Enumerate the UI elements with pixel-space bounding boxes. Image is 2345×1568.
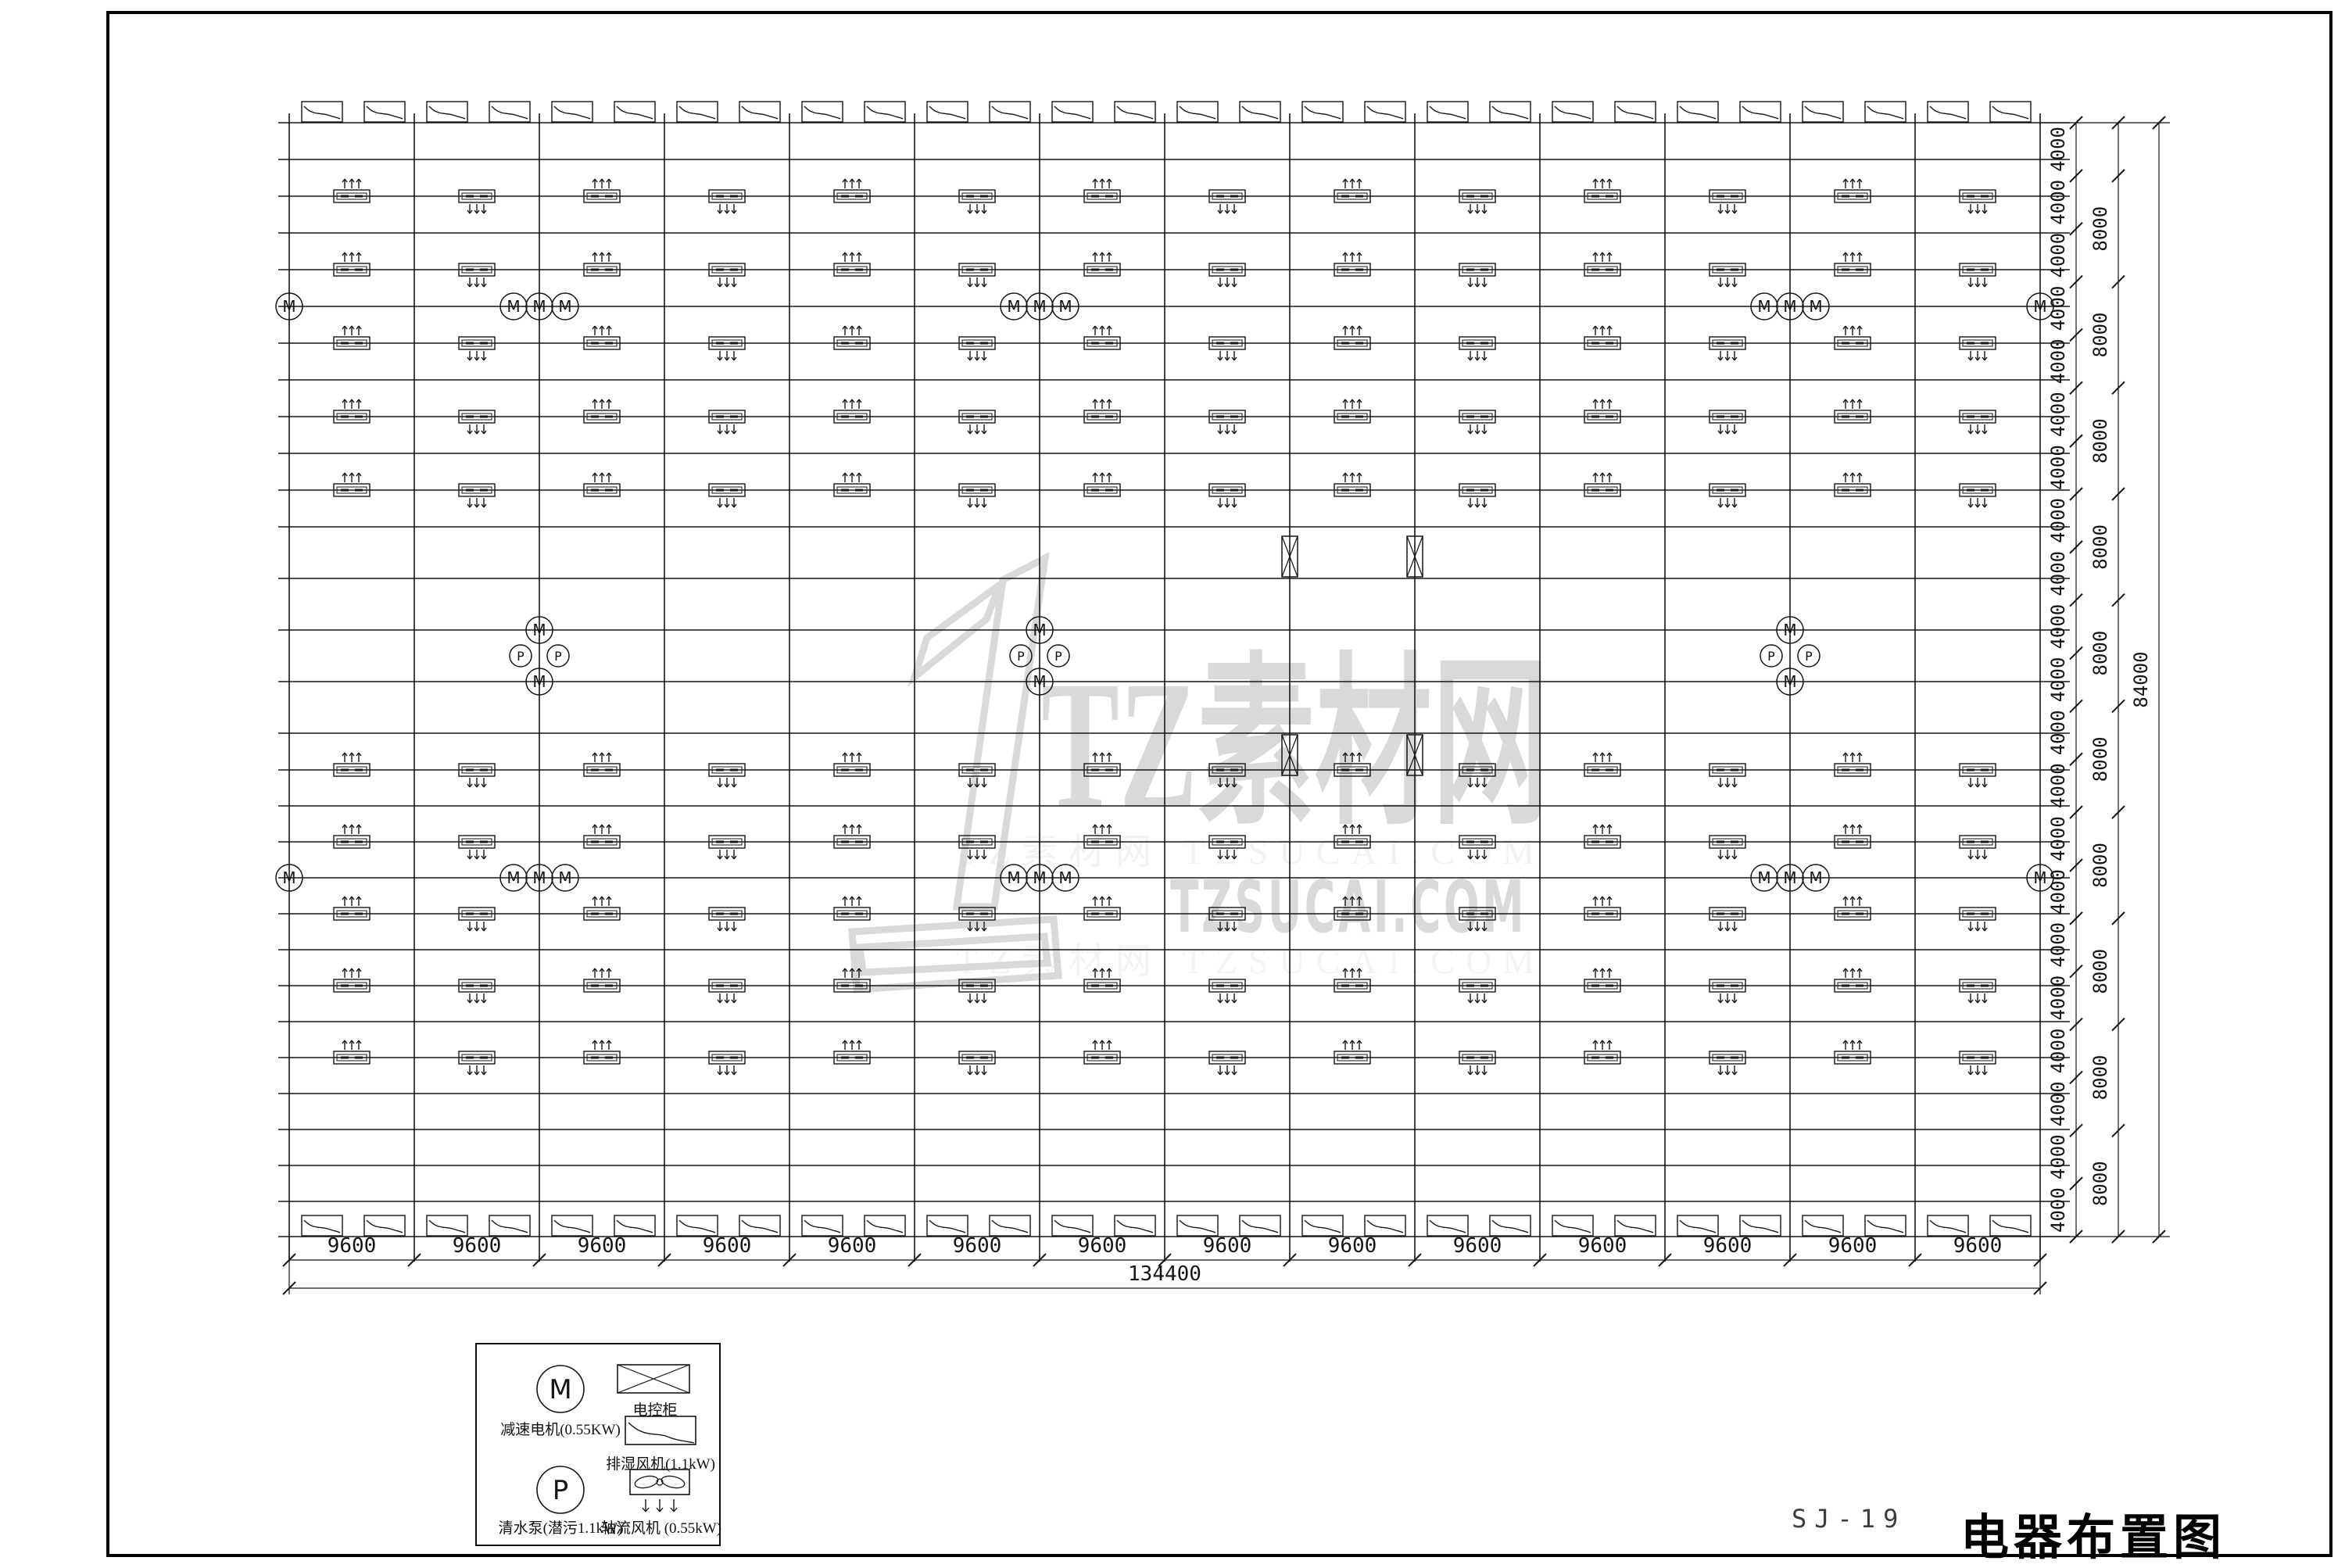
exhaust-fan-symbol — [1928, 1215, 1968, 1236]
exhaust-fan-symbol — [990, 1215, 1030, 1236]
svg-text:M: M — [507, 297, 520, 316]
axial-fan-symbol — [1960, 190, 1996, 213]
motor-symbol: M — [1026, 865, 1053, 891]
exhaust-fan-symbol — [1552, 102, 1593, 122]
axial-fan-symbol — [1710, 410, 1745, 434]
exhaust-fan-symbol — [1740, 1215, 1781, 1236]
axial-fan-symbol — [1209, 484, 1245, 507]
exhaust-fan-symbol — [614, 102, 655, 122]
svg-text:4000: 4000 — [2047, 1029, 2069, 1074]
exhaust-fan-symbol — [489, 102, 530, 122]
watermark-brand: TZ素材网 — [1041, 643, 1549, 847]
exhaust-fan-symbol — [739, 102, 780, 122]
axial-fan-symbol — [334, 897, 370, 920]
svg-text:4000: 4000 — [2047, 1134, 2069, 1180]
exhaust-fan-symbol — [1177, 102, 1218, 122]
axial-fan-symbol — [584, 473, 620, 496]
exhaust-fan-symbol — [1615, 1215, 1656, 1236]
motor-symbol: M — [500, 865, 527, 891]
exhaust-fan-symbol — [1177, 1215, 1218, 1236]
svg-text:4000: 4000 — [2047, 604, 2069, 650]
exhaust-fan-symbol — [1240, 102, 1280, 122]
motor-symbol: M — [526, 865, 553, 891]
axial-fan-symbol — [334, 252, 370, 276]
exhaust-fan-symbol — [1552, 1215, 1593, 1236]
axial-fan-symbol — [1710, 484, 1745, 507]
exhaust-fan-symbol — [802, 102, 843, 122]
motor-symbol: M — [1803, 293, 1829, 320]
legend-axial-fan-label: 轴流风机 (0.55kW) — [601, 1516, 721, 1538]
legend-motor-label: 减速电机(0.55KW) — [500, 1418, 621, 1439]
exhaust-fan-symbol — [1740, 102, 1781, 122]
svg-text:M: M — [282, 868, 295, 887]
motor-symbol: M — [1026, 617, 1053, 643]
axial-fan-symbol — [1710, 908, 1745, 931]
svg-text:M: M — [2033, 297, 2046, 316]
svg-text:4000: 4000 — [2047, 1187, 2069, 1233]
axial-fan-symbol — [1835, 968, 1871, 992]
axial-fan-symbol — [1584, 825, 1620, 848]
motor-symbol: M — [526, 668, 553, 695]
exhaust-fan-symbol — [802, 1215, 843, 1236]
axial-fan-symbol — [1209, 410, 1245, 434]
pump-symbol: P — [1047, 645, 1069, 667]
exhaust-fan-symbol — [677, 1215, 718, 1236]
axial-fan-symbol — [1960, 484, 1996, 507]
axial-fan-symbol — [1710, 337, 1745, 360]
axial-fan-symbol — [584, 399, 620, 423]
drawing-sheet: TZ素材网TZSUCAI.COMTZ素材网 TZSUCAI.COMTZ素材网 T… — [0, 0, 2345, 1563]
svg-text:9600: 9600 — [1453, 1234, 1502, 1258]
svg-text:M: M — [1783, 621, 1796, 639]
svg-text:M: M — [1033, 621, 1046, 639]
motor-symbol: M — [276, 293, 303, 320]
exhaust-fan-symbol — [1990, 1215, 2031, 1236]
svg-text:4000: 4000 — [2047, 338, 2069, 384]
svg-text:M: M — [1809, 868, 1822, 887]
svg-text:8000: 8000 — [2089, 313, 2111, 358]
exhaust-fan-symbol — [1052, 102, 1093, 122]
svg-text:8000: 8000 — [2089, 206, 2111, 252]
svg-text:9600: 9600 — [1578, 1234, 1627, 1258]
exhaust-fan-symbol — [1365, 102, 1405, 122]
watermark-faint-row: TZ素材网 TZSUCAI.COM — [956, 941, 1545, 981]
svg-text:8000: 8000 — [2089, 1055, 2111, 1101]
exhaust-fan-symbol — [927, 102, 968, 122]
axial-fan-symbol — [1960, 979, 1996, 1003]
axial-fan-symbol — [584, 326, 620, 349]
svg-text:8000: 8000 — [2089, 736, 2111, 782]
exhaust-fan-symbol — [865, 1215, 905, 1236]
svg-text:M: M — [532, 868, 546, 887]
svg-text:134400: 134400 — [1128, 1262, 1201, 1286]
axial-fan-symbol — [1584, 179, 1620, 202]
axial-fan-symbol — [709, 836, 745, 859]
axial-fan-symbol — [1334, 179, 1370, 202]
exhaust-fan-symbol — [1115, 102, 1155, 122]
axial-fan-symbol — [834, 179, 870, 202]
axial-fan-symbol — [334, 326, 370, 349]
svg-text:9600: 9600 — [1828, 1234, 1878, 1258]
axial-fan-symbol — [459, 908, 495, 931]
svg-text:4000: 4000 — [2047, 816, 2069, 861]
svg-text:9600: 9600 — [703, 1234, 752, 1258]
axial-fan-symbol — [1835, 326, 1871, 349]
axial-fan-symbol — [834, 399, 870, 423]
motor-symbol: M — [1777, 617, 1803, 643]
axial-fan-symbol — [459, 263, 495, 287]
axial-fan-symbol — [959, 263, 995, 287]
exhaust-fan-symbol — [427, 102, 467, 122]
axial-fan-symbol — [334, 968, 370, 992]
axial-fan-symbol — [834, 473, 870, 496]
svg-text:4000: 4000 — [2047, 869, 2069, 915]
axial-fan-symbol — [459, 764, 495, 787]
svg-text:84000: 84000 — [2130, 651, 2152, 707]
axial-fan-symbol — [584, 825, 620, 848]
pump-symbol: P — [510, 645, 532, 667]
exhaust-fan-symbol — [1427, 102, 1468, 122]
pump-symbol: P — [1760, 645, 1782, 667]
motor-symbol: M — [1001, 293, 1027, 320]
svg-text:9600: 9600 — [1078, 1234, 1127, 1258]
exhaust-fan-symbol — [1865, 102, 1906, 122]
svg-text:4000: 4000 — [2047, 710, 2069, 755]
axial-fan-symbol — [1584, 252, 1620, 276]
axial-fan-symbol — [1459, 263, 1495, 287]
axial-fan-symbol — [1584, 473, 1620, 496]
axial-fan-symbol — [1710, 190, 1745, 213]
exhaust-fan-symbol — [677, 102, 718, 122]
axial-fan-symbol — [459, 190, 495, 213]
axial-fan-symbol — [1710, 979, 1745, 1003]
axial-fan-symbol — [1084, 1040, 1120, 1064]
axial-fan-symbol — [1710, 836, 1745, 859]
svg-text:M: M — [2033, 868, 2046, 887]
axial-fan-symbol — [709, 979, 745, 1003]
svg-text:4000: 4000 — [2047, 657, 2069, 703]
axial-fan-symbol — [1960, 1051, 1996, 1075]
motor-symbol: M — [552, 293, 578, 320]
axial-fan-symbol — [1084, 252, 1120, 276]
axial-fan-symbol — [459, 836, 495, 859]
axial-fan-symbol — [959, 979, 995, 1003]
page-title: 电器布置图 — [1960, 1498, 2226, 1568]
axial-fan-symbol — [1084, 897, 1120, 920]
axial-fan-symbol — [334, 1040, 370, 1064]
exhaust-fan-symbol — [739, 1215, 780, 1236]
axial-fan-symbol — [584, 753, 620, 776]
axial-fan-symbol — [1584, 897, 1620, 920]
svg-text:4000: 4000 — [2047, 233, 2069, 278]
motor-symbol: M — [1803, 865, 1829, 891]
svg-text:4000: 4000 — [2047, 180, 2069, 225]
axial-fan-symbol — [584, 252, 620, 276]
axial-fan-symbol — [1459, 979, 1495, 1003]
exhaust-fan-symbol — [1427, 1215, 1468, 1236]
svg-text:4000: 4000 — [2047, 127, 2069, 172]
axial-fan-symbol — [1084, 399, 1120, 423]
axial-fan-symbol — [1960, 764, 1996, 787]
svg-text:4000: 4000 — [2047, 551, 2069, 596]
axial-fan-symbol — [834, 252, 870, 276]
axial-fan-symbol — [1835, 1040, 1871, 1064]
axial-fan-symbol — [709, 263, 745, 287]
exhaust-fan-symbol — [1865, 1215, 1906, 1236]
axial-fan-symbol — [459, 484, 495, 507]
svg-text:M: M — [282, 297, 295, 316]
svg-text:M: M — [507, 868, 520, 887]
svg-text:P: P — [1017, 649, 1025, 664]
svg-text:9600: 9600 — [828, 1234, 877, 1258]
axial-fan-symbol — [1334, 1040, 1370, 1064]
pump-symbol: P — [1798, 645, 1820, 667]
axial-fan-symbol — [709, 337, 745, 360]
axial-fan-symbol — [709, 1051, 745, 1075]
svg-text:4000: 4000 — [2047, 976, 2069, 1021]
axial-fan-symbol — [334, 399, 370, 423]
axial-fan-symbol — [1459, 337, 1495, 360]
exhaust-fan-symbol — [1677, 1215, 1718, 1236]
axial-fan-symbol — [1835, 179, 1871, 202]
exhaust-fan-symbol — [1052, 1215, 1093, 1236]
svg-text:4000: 4000 — [2047, 922, 2069, 968]
watermark-logo — [915, 585, 1000, 677]
axial-fan-symbol — [1835, 753, 1871, 776]
exhaust-fan-symbol — [364, 1215, 405, 1236]
axial-fan-symbol — [1835, 897, 1871, 920]
axial-fan-symbol — [1584, 753, 1620, 776]
axial-fan-symbol — [959, 410, 995, 434]
axial-fan-symbol — [1334, 252, 1370, 276]
motor-symbol: M — [526, 293, 553, 320]
svg-text:4000: 4000 — [2047, 763, 2069, 808]
svg-text:M: M — [1757, 868, 1770, 887]
svg-text:4000: 4000 — [2047, 1081, 2069, 1126]
sheet-code: SJ-19 — [1792, 1504, 1906, 1534]
svg-text:M: M — [1033, 672, 1046, 691]
axial-fan-symbol — [834, 897, 870, 920]
exhaust-fan-symbol — [489, 1215, 530, 1236]
svg-text:M: M — [558, 868, 571, 887]
axial-fan-symbol — [1584, 399, 1620, 423]
axial-fan-symbol — [1584, 1040, 1620, 1064]
axial-fan-symbol — [834, 753, 870, 776]
motor-symbol: M — [1751, 293, 1778, 320]
svg-text:9600: 9600 — [1703, 1234, 1752, 1258]
svg-text:9600: 9600 — [953, 1234, 1002, 1258]
exhaust-fan-symbol — [364, 102, 405, 122]
axial-fan-symbol — [709, 908, 745, 931]
axial-fan-symbol — [709, 190, 745, 213]
axial-fan-symbol — [1209, 1051, 1245, 1075]
axial-fan-symbol — [459, 410, 495, 434]
axial-fan-symbol — [709, 410, 745, 434]
exhaust-fan-symbol — [302, 1215, 342, 1236]
svg-text:9600: 9600 — [1953, 1234, 2003, 1258]
axial-fan-symbol — [334, 825, 370, 848]
svg-text:M: M — [1783, 297, 1796, 316]
axial-fan-symbol — [459, 979, 495, 1003]
axial-fan-symbol — [834, 326, 870, 349]
svg-text:M: M — [1058, 297, 1072, 316]
exhaust-fan-symbol — [865, 102, 905, 122]
exhaust-fan-symbol — [1115, 1215, 1155, 1236]
motor-symbol: M — [1777, 293, 1803, 320]
motor-symbol: M — [1052, 865, 1079, 891]
axial-fan-symbol — [1459, 1051, 1495, 1075]
svg-text:9600: 9600 — [453, 1234, 502, 1258]
axial-fan-symbol — [959, 190, 995, 213]
axial-fan-symbol — [1835, 473, 1871, 496]
motor-symbol: M — [500, 293, 527, 320]
axial-fan-symbol — [1710, 1051, 1745, 1075]
exhaust-fan-symbol — [1302, 102, 1343, 122]
motor-symbol: M — [552, 865, 578, 891]
floor-plan-canvas: TZ素材网TZSUCAI.COMTZ素材网 TZSUCAI.COMTZ素材网 T… — [0, 0, 2345, 1563]
svg-text:4000: 4000 — [2047, 498, 2069, 543]
axial-fan-symbol — [1960, 908, 1996, 931]
svg-text:8000: 8000 — [2089, 524, 2111, 570]
legend-box — [475, 1343, 721, 1546]
axial-fan-symbol — [1084, 179, 1120, 202]
exhaust-fan-symbol — [552, 102, 593, 122]
svg-text:8000: 8000 — [2089, 418, 2111, 464]
svg-text:P: P — [1767, 649, 1775, 664]
motor-symbol: M — [1777, 865, 1803, 891]
axial-fan-symbol — [459, 337, 495, 360]
exhaust-fan-symbol — [1490, 1215, 1531, 1236]
svg-text:9600: 9600 — [1203, 1234, 1252, 1258]
motor-symbol: M — [1026, 668, 1053, 695]
axial-fan-symbol — [834, 1040, 870, 1064]
motor-symbol: M — [1751, 865, 1778, 891]
svg-text:8000: 8000 — [2089, 631, 2111, 676]
svg-text:M: M — [532, 672, 546, 691]
axial-fan-symbol — [1209, 190, 1245, 213]
svg-text:4000: 4000 — [2047, 445, 2069, 490]
axial-fan-symbol — [1209, 263, 1245, 287]
axial-fan-symbol — [1334, 473, 1370, 496]
svg-text:M: M — [1783, 672, 1796, 691]
motor-symbol: M — [1777, 668, 1803, 695]
motor-symbol: M — [1001, 865, 1027, 891]
axial-fan-symbol — [584, 179, 620, 202]
axial-fan-symbol — [959, 337, 995, 360]
axial-fan-symbol — [1209, 337, 1245, 360]
svg-text:M: M — [1058, 868, 1072, 887]
axial-fan-symbol — [834, 825, 870, 848]
exhaust-fan-symbol — [302, 102, 342, 122]
axial-fan-symbol — [334, 473, 370, 496]
exhaust-fan-symbol — [1928, 102, 1968, 122]
exhaust-fan-symbol — [614, 1215, 655, 1236]
axial-fan-symbol — [334, 753, 370, 776]
axial-fan-symbol — [1960, 410, 1996, 434]
exhaust-fan-symbol — [552, 1215, 593, 1236]
axial-fan-symbol — [1710, 263, 1745, 287]
svg-text:M: M — [1809, 297, 1822, 316]
axial-fan-symbol — [459, 1051, 495, 1075]
pump-symbol: P — [1010, 645, 1032, 667]
svg-text:9600: 9600 — [578, 1234, 627, 1258]
svg-text:M: M — [1007, 297, 1020, 316]
legend-cabinet-label: 电控柜 — [632, 1398, 677, 1419]
axial-fan-symbol — [1584, 326, 1620, 349]
motor-symbol: M — [1026, 293, 1053, 320]
exhaust-fan-symbol — [1240, 1215, 1280, 1236]
exhaust-fan-symbol — [1803, 1215, 1843, 1236]
exhaust-fan-symbol — [927, 1215, 968, 1236]
exhaust-fan-symbol — [1803, 102, 1843, 122]
svg-text:M: M — [558, 297, 571, 316]
svg-text:8000: 8000 — [2089, 1161, 2111, 1206]
axial-fan-symbol — [1459, 410, 1495, 434]
axial-fan-symbol — [1835, 399, 1871, 423]
axial-fan-symbol — [584, 968, 620, 992]
exhaust-fan-symbol — [1615, 102, 1656, 122]
motor-symbol: M — [526, 617, 553, 643]
svg-text:8000: 8000 — [2089, 949, 2111, 994]
exhaust-fan-symbol — [1677, 102, 1718, 122]
svg-text:M: M — [1033, 868, 1046, 887]
svg-text:4000: 4000 — [2047, 286, 2069, 331]
exhaust-fan-symbol — [1365, 1215, 1405, 1236]
axial-fan-symbol — [1459, 190, 1495, 213]
svg-text:P: P — [517, 649, 524, 664]
axial-fan-symbol — [1334, 326, 1370, 349]
axial-fan-symbol — [334, 179, 370, 202]
svg-text:4000: 4000 — [2047, 392, 2069, 437]
svg-text:8000: 8000 — [2089, 843, 2111, 888]
legend-exhaust-fan-label: 排湿风机(1.1kW) — [606, 1452, 715, 1473]
axial-fan-symbol — [1835, 825, 1871, 848]
svg-text:M: M — [1033, 297, 1046, 316]
svg-text:P: P — [554, 649, 562, 664]
svg-text:P: P — [1805, 649, 1813, 664]
axial-fan-symbol — [584, 897, 620, 920]
exhaust-fan-symbol — [990, 102, 1030, 122]
axial-fan-symbol — [1084, 326, 1120, 349]
axial-fan-symbol — [1459, 484, 1495, 507]
axial-fan-symbol — [959, 484, 995, 507]
motor-symbol: M — [276, 865, 303, 891]
svg-text:M: M — [532, 297, 546, 316]
axial-fan-symbol — [1835, 252, 1871, 276]
axial-fan-symbol — [709, 484, 745, 507]
svg-text:M: M — [1757, 297, 1770, 316]
svg-text:9600: 9600 — [1328, 1234, 1377, 1258]
axial-fan-symbol — [1084, 473, 1120, 496]
svg-text:M: M — [532, 621, 546, 639]
pump-symbol: P — [547, 645, 569, 667]
exhaust-fan-symbol — [1990, 102, 2031, 122]
axial-fan-symbol — [1209, 979, 1245, 1003]
motor-symbol: M — [1052, 293, 1079, 320]
axial-fan-symbol — [1960, 263, 1996, 287]
axial-fan-symbol — [959, 1051, 995, 1075]
axial-fan-symbol — [1960, 836, 1996, 859]
dimensions-right: 4000400040004000400040004000400040004000… — [2040, 116, 2170, 1243]
svg-text:M: M — [1007, 868, 1020, 887]
watermark: TZ素材网TZSUCAI.COMTZ素材网 TZSUCAI.COMTZ素材网 T… — [852, 558, 1549, 990]
svg-text:P: P — [1054, 649, 1062, 664]
exhaust-fan-symbol — [1490, 102, 1531, 122]
axial-fan-symbol — [1960, 337, 1996, 360]
exhaust-fan-symbol — [427, 1215, 467, 1236]
axial-fan-symbol — [1334, 399, 1370, 423]
svg-text:9600: 9600 — [328, 1234, 377, 1258]
